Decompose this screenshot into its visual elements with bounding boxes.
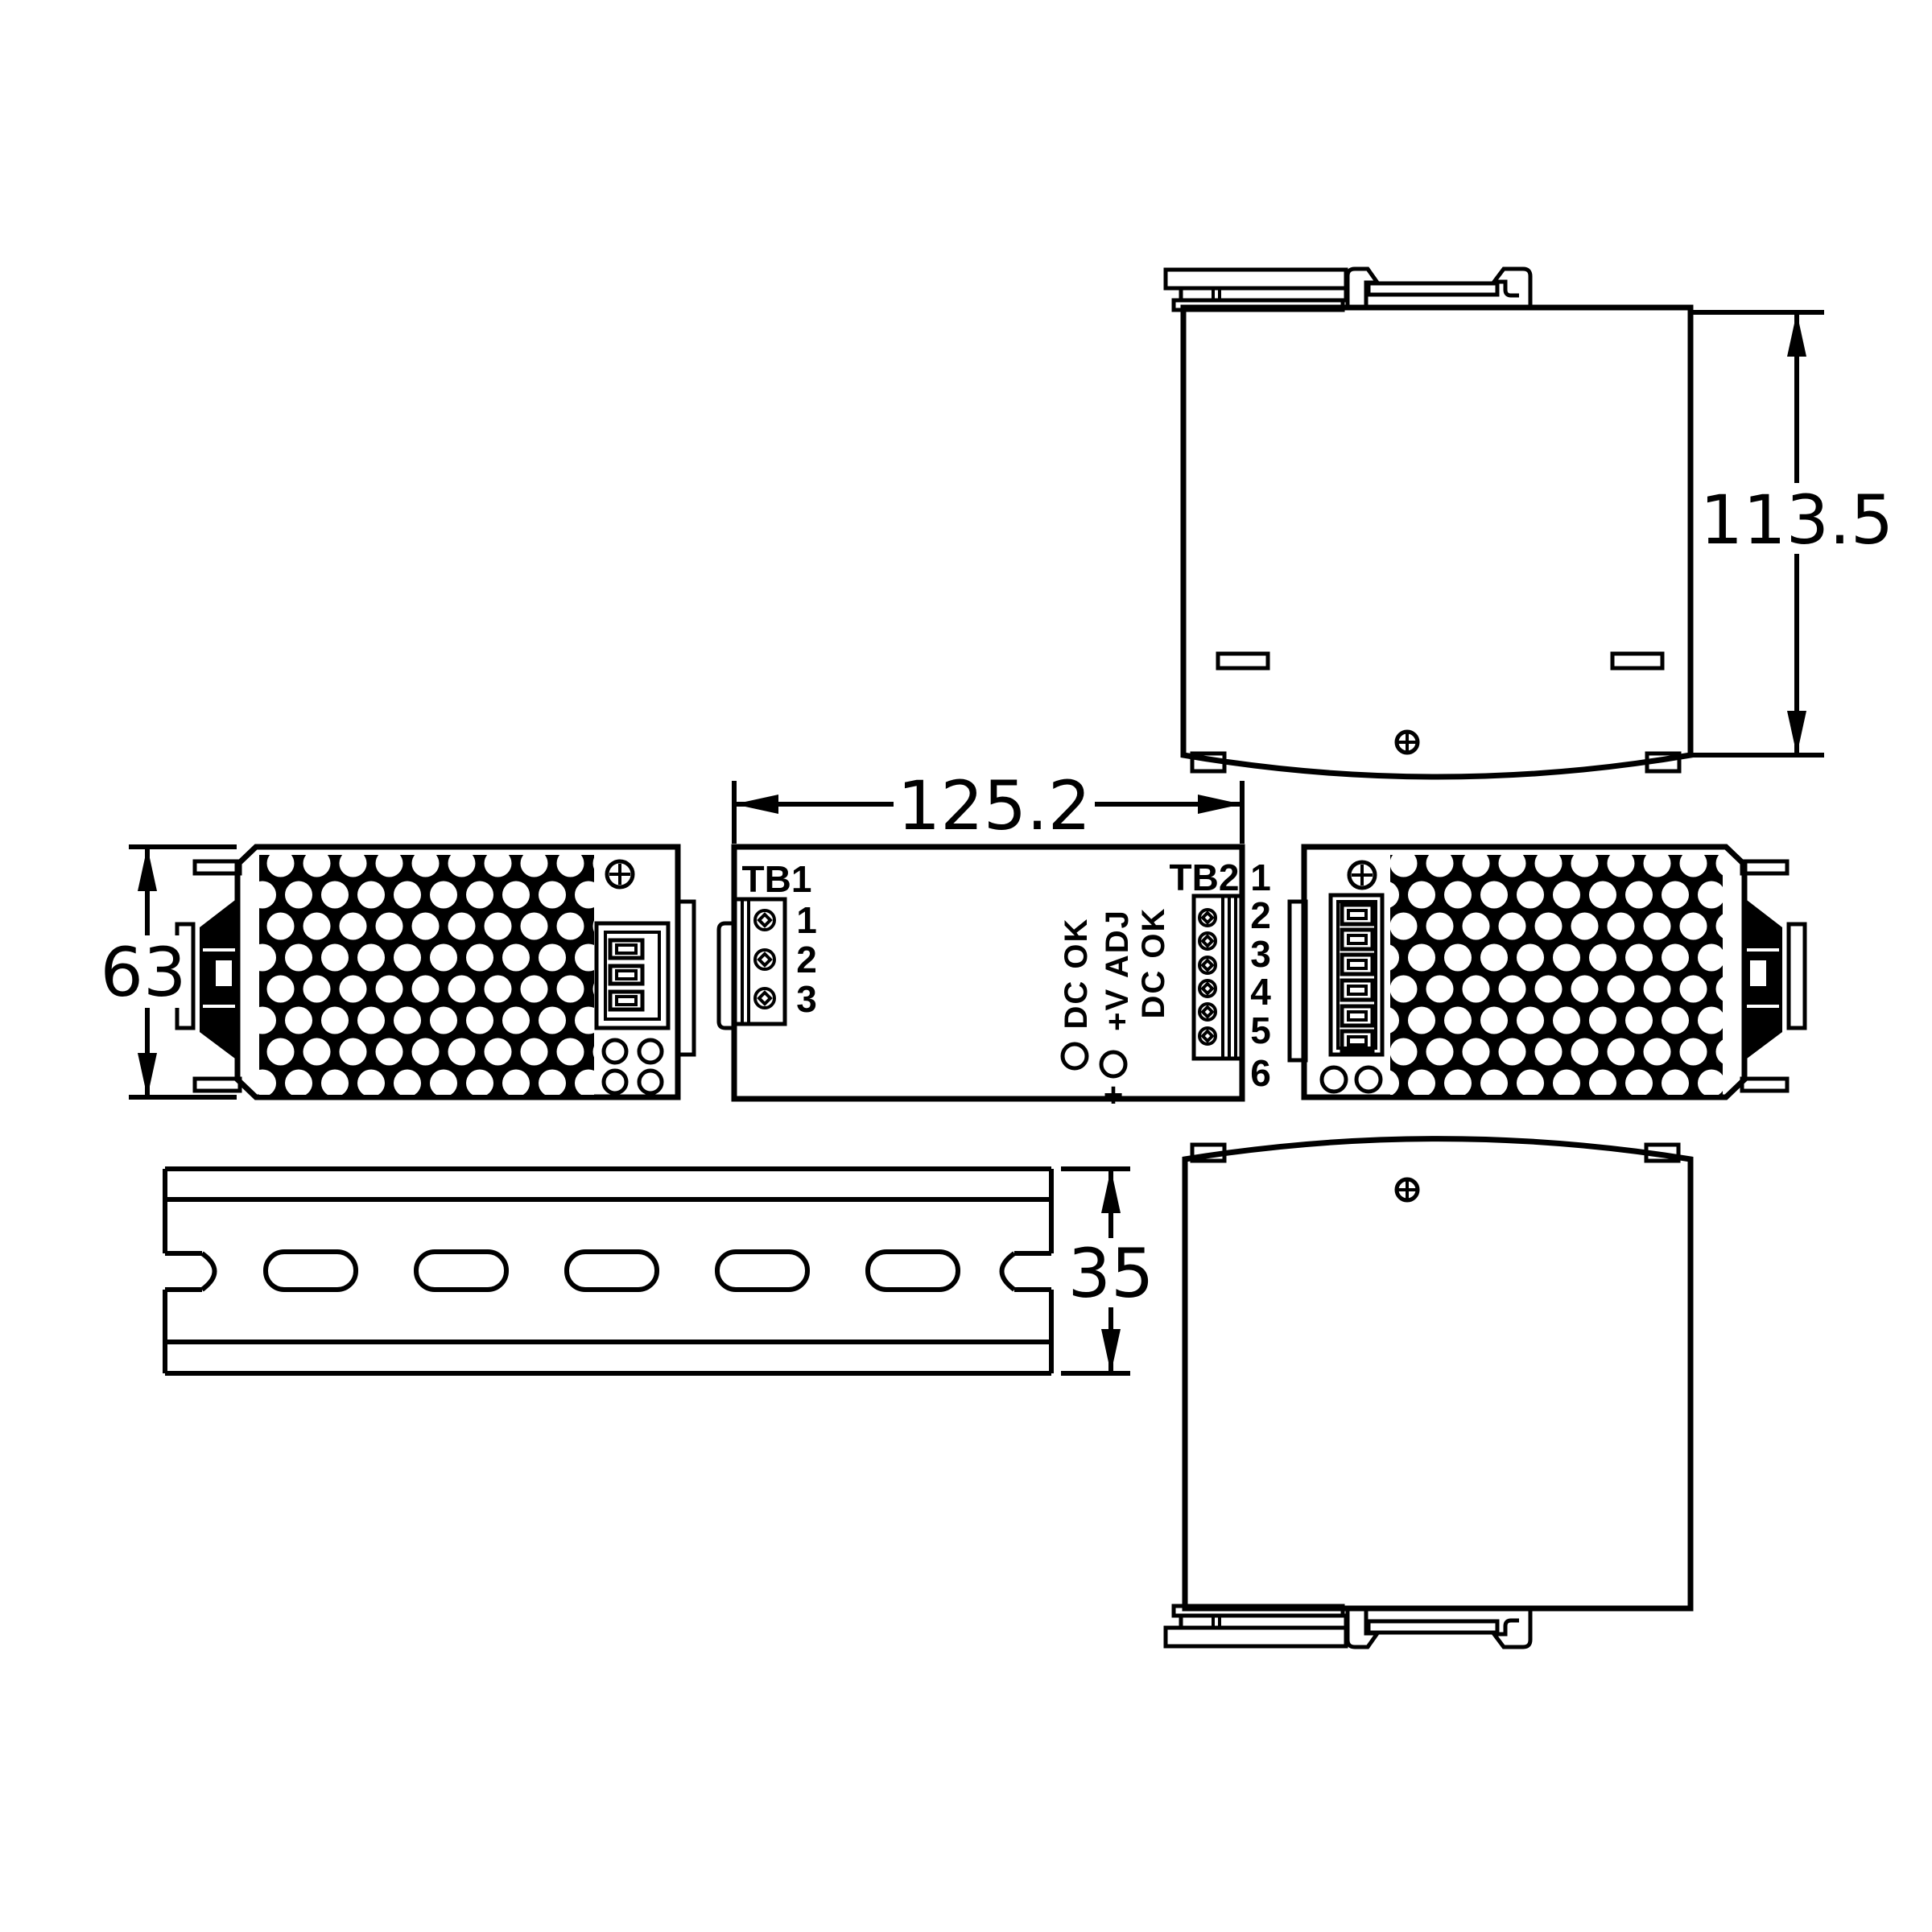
- din-rail: [165, 1169, 1051, 1373]
- polarity-plus-label: +: [1104, 1076, 1124, 1114]
- tb2-pin-2: 2: [1250, 894, 1271, 936]
- rail-slot: [717, 1252, 807, 1290]
- terminal-window-6: [1331, 895, 1382, 1055]
- dimension-drawing: TB1 1 2 3: [0, 0, 1932, 1932]
- front-view: TB1 1 2 3: [719, 847, 1271, 1114]
- din-clip-profile: [200, 898, 238, 1061]
- drawing-page: TB1 1 2 3: [0, 0, 1932, 1932]
- tb2-pin-3: 3: [1250, 933, 1271, 975]
- rail-half-slot-right: [1002, 1253, 1052, 1290]
- dc-ok-label-inner: DC OK: [1136, 907, 1171, 1019]
- tb2-pin-4: 4: [1250, 971, 1271, 1013]
- vent-grille: [259, 855, 594, 1095]
- screw-icon: [1349, 862, 1375, 888]
- mount-tab: [195, 861, 240, 873]
- din-clip-bottom: [1166, 1606, 1530, 1647]
- din-clip-profile: [1744, 898, 1782, 1061]
- din-latch-plate: [1789, 924, 1805, 1028]
- rail-slot: [567, 1252, 657, 1290]
- screw-icon: [607, 861, 633, 887]
- tb1-label: TB1: [742, 858, 812, 900]
- dim-front-width-value: 125.2: [898, 766, 1091, 845]
- enclosure-body: [1185, 1139, 1690, 1609]
- rail-slot: [868, 1252, 958, 1290]
- dimension-front-width: 125.2: [734, 766, 1242, 845]
- dimension-rail-size: 35: [1061, 1169, 1154, 1373]
- tb1-pin-3: 3: [796, 978, 817, 1020]
- dimension-side-height: 113.5: [1693, 312, 1893, 755]
- tb2-pin-5: 5: [1250, 1009, 1271, 1051]
- rail-half-slot-left: [165, 1253, 215, 1290]
- tb2-pin-1: 1: [1250, 857, 1271, 898]
- tb2-pin-6: 6: [1250, 1052, 1271, 1094]
- dim-rail-size-value: 35: [1068, 1234, 1154, 1313]
- din-clip-top: [1166, 269, 1530, 310]
- enclosure-body: [1183, 308, 1690, 777]
- side-view-right: [1290, 847, 1805, 1097]
- tb2-label: TB2: [1170, 857, 1240, 898]
- side-view-left: [177, 847, 694, 1097]
- dim-side-width-value: 63: [101, 933, 187, 1012]
- side-view-bottom: [1166, 1139, 1690, 1648]
- tb1-pin-1: 1: [796, 899, 817, 941]
- v-adj-label: +V ADJ: [1100, 909, 1135, 1031]
- vent-grille: [1390, 855, 1723, 1095]
- dc-ok-label-outer: DC OK: [1059, 918, 1094, 1030]
- side-view-top: [1166, 269, 1690, 777]
- screw-icon: [1397, 1179, 1418, 1200]
- tb1-pin-2: 2: [796, 939, 817, 980]
- rail-slot: [266, 1252, 356, 1290]
- mount-tab: [195, 1079, 240, 1091]
- screw-icon: [1397, 732, 1418, 753]
- mount-tab: [1742, 1079, 1787, 1091]
- mount-tab: [1742, 861, 1787, 873]
- rail-slot: [416, 1252, 506, 1290]
- dim-side-height-value: 113.5: [1700, 481, 1893, 559]
